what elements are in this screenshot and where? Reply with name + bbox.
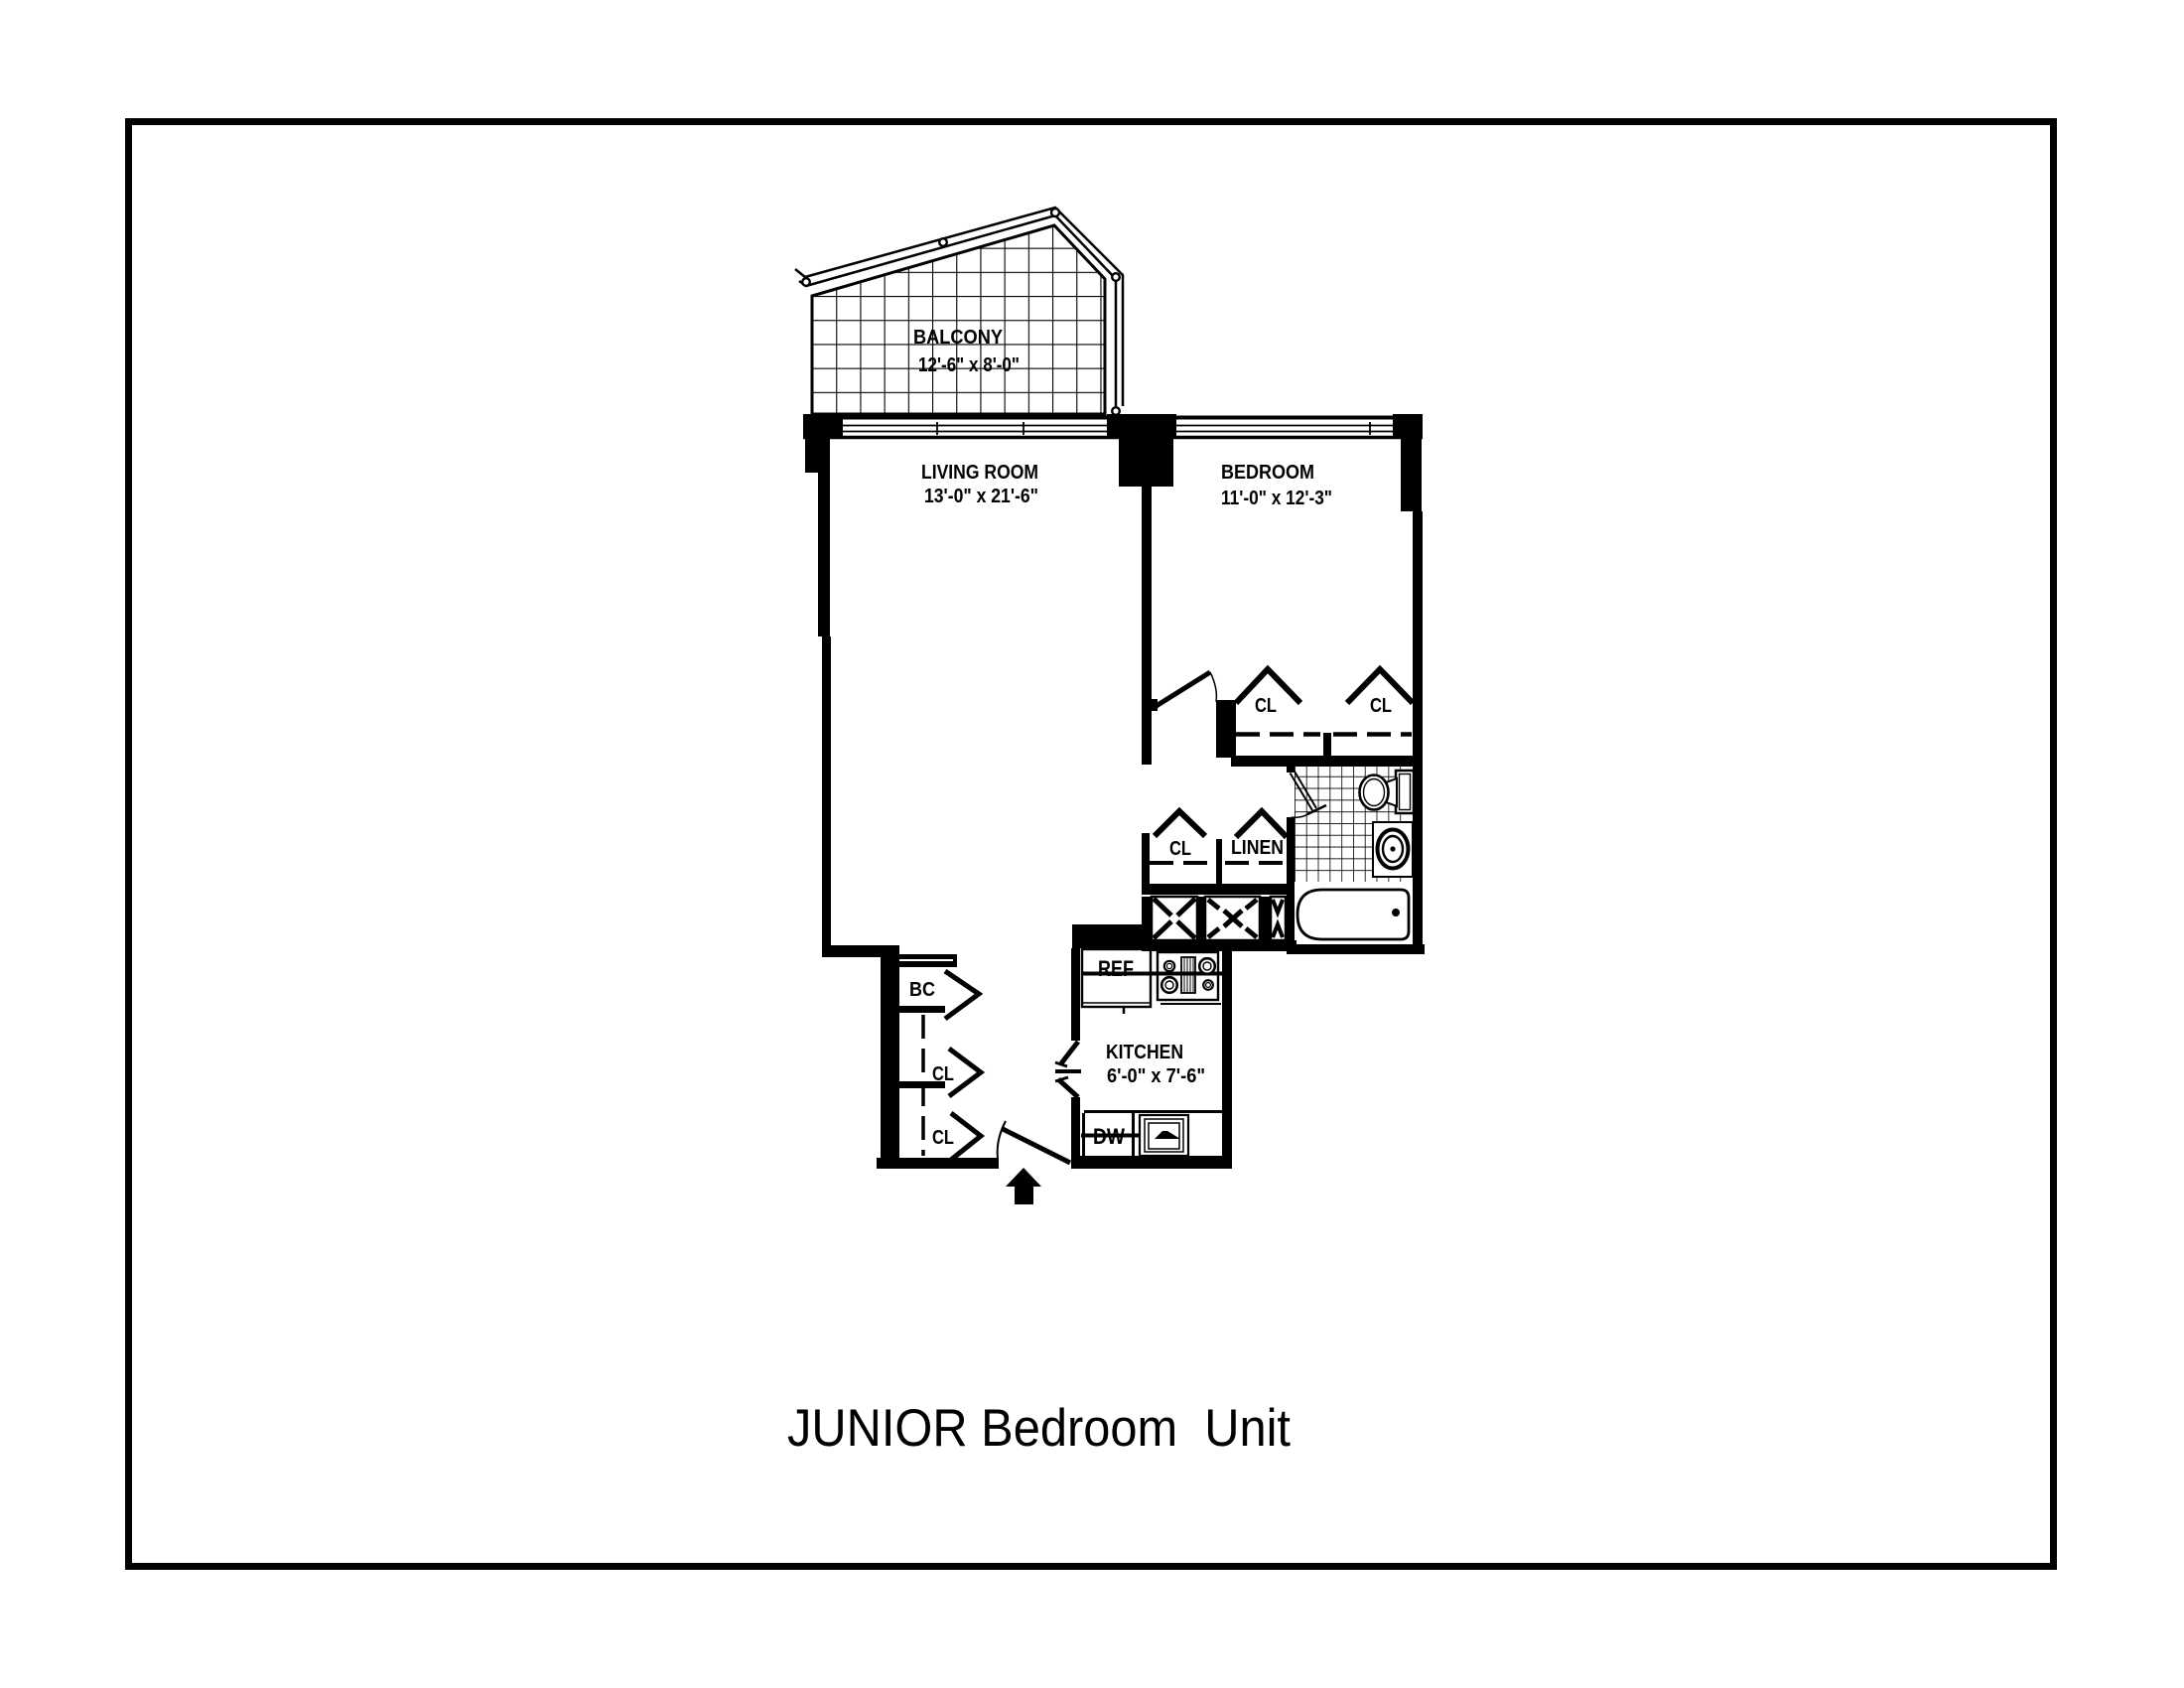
svg-text:REF: REF xyxy=(1098,956,1134,981)
svg-text:LIVING ROOM: LIVING ROOM xyxy=(921,462,1038,484)
svg-text:KITCHEN: KITCHEN xyxy=(1106,1042,1183,1063)
svg-text:12'-6" x 8'-0": 12'-6" x 8'-0" xyxy=(918,354,1020,376)
svg-text:JUNIOR Bedroom Unit: JUNIOR Bedroom Unit xyxy=(787,1399,1291,1458)
svg-text:CL: CL xyxy=(1370,695,1392,717)
svg-text:11'-0" x 12'-3": 11'-0" x 12'-3" xyxy=(1221,488,1332,509)
svg-text:13'-0" x 21'-6": 13'-0" x 21'-6" xyxy=(924,486,1038,507)
svg-text:BC: BC xyxy=(909,979,935,1001)
svg-text:6'-0" x 7'-6": 6'-0" x 7'-6" xyxy=(1107,1065,1205,1087)
svg-text:LINEN: LINEN xyxy=(1231,837,1284,859)
svg-text:CL: CL xyxy=(1255,695,1277,717)
svg-text:BALCONY: BALCONY xyxy=(913,327,1004,349)
svg-text:DW: DW xyxy=(1093,1124,1125,1149)
svg-text:CL: CL xyxy=(932,1127,954,1149)
svg-text:CL: CL xyxy=(1169,838,1191,860)
svg-text:BEDROOM: BEDROOM xyxy=(1221,462,1314,484)
